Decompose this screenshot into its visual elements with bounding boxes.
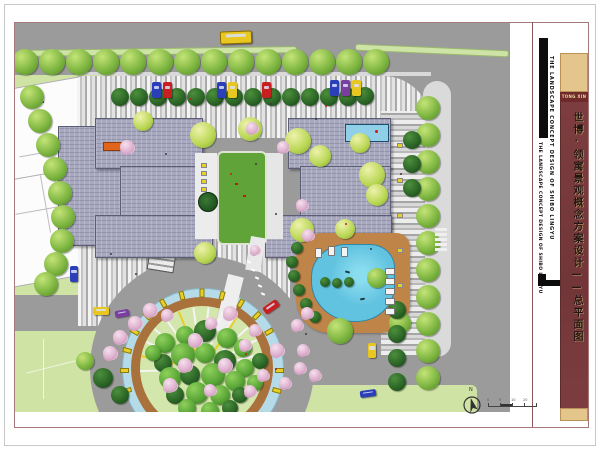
tree-dark: [403, 131, 421, 149]
tree-light: [66, 49, 92, 75]
scale-bar: 051020: [488, 398, 540, 410]
tree-yellow: [309, 145, 331, 167]
tree-yellow: [190, 122, 216, 148]
chinese-title: 世博·领寓景观概念方案设计——总平面图: [569, 112, 584, 343]
person-dot: [325, 105, 327, 107]
scale-tick: [536, 403, 537, 407]
crosswalk-bar: [435, 238, 447, 241]
tree-light: [39, 49, 65, 75]
tree-flowering: [250, 245, 260, 255]
pool-lounger: [341, 247, 348, 257]
tree-light: [15, 49, 38, 75]
tree-flowering: [204, 384, 216, 396]
titleblock-divider-line: [532, 22, 533, 427]
tree-dark: [403, 179, 421, 197]
person-dot: [245, 353, 247, 355]
tree-flowering: [270, 343, 284, 357]
tree-dark: [293, 284, 305, 296]
tree-light: [363, 49, 389, 75]
tree-light: [327, 318, 353, 344]
person-dot: [110, 253, 112, 255]
parking-marker: [201, 171, 207, 176]
parking-marker: [201, 163, 207, 168]
person-dot: [220, 101, 222, 103]
tree-yellow: [335, 219, 355, 239]
car: [330, 80, 339, 96]
tree-light: [416, 366, 440, 390]
parking-marker: [397, 283, 403, 288]
tree-dark: [286, 256, 298, 268]
plaza-tick: [200, 289, 205, 298]
tree-flowering: [279, 377, 291, 389]
tree-dark: [388, 349, 406, 367]
person-dot: [275, 213, 277, 215]
tree-yellow: [133, 111, 153, 131]
tree-flowering: [302, 229, 314, 241]
tree-dark: [111, 386, 129, 404]
tree-flowering: [257, 369, 269, 381]
tree-flowering: [297, 344, 309, 356]
tree-yellow: [285, 128, 311, 154]
car: [368, 343, 376, 358]
lawn-line: [43, 339, 44, 399]
tree-flowering: [291, 319, 303, 331]
tree-light: [120, 49, 146, 75]
tree-flowering: [309, 369, 321, 381]
tree-plaza: [145, 345, 161, 361]
crosswalk-bar: [435, 243, 447, 246]
plaza-tick: [120, 368, 129, 373]
scale-bar-segment: [500, 404, 512, 406]
car: [93, 307, 109, 315]
tree-flowering: [296, 199, 308, 211]
tree-light: [43, 157, 67, 181]
tree-dark: [93, 368, 113, 388]
scale-tick: [488, 403, 489, 407]
tree-light: [51, 205, 75, 229]
tree-light: [416, 258, 440, 282]
tree-light: [93, 49, 119, 75]
tree-light: [36, 133, 60, 157]
car: [262, 82, 271, 98]
site-plan: L: [15, 23, 510, 412]
car: [341, 80, 350, 96]
tree-flowering: [128, 316, 142, 330]
tree-light: [228, 49, 254, 75]
tree-flowering: [239, 339, 251, 351]
marker-dot: [375, 130, 378, 133]
tree-flowering: [205, 317, 217, 329]
scale-tick: [524, 403, 525, 407]
person-dot: [275, 368, 277, 370]
scale-tick: [512, 403, 513, 407]
tree-flowering: [301, 307, 313, 319]
tree-yellow: [194, 242, 216, 264]
scale-tick-label: 5: [499, 398, 501, 402]
car: [163, 82, 172, 98]
titleblock-black-bar: [539, 38, 548, 138]
tree-plaza: [252, 353, 268, 369]
person-dot: [255, 163, 257, 165]
drawing-sheet: L THE LANDSCAPE CO: [0, 0, 600, 450]
tree-light: [416, 339, 440, 363]
tree-light: [367, 268, 387, 288]
tree-light: [416, 285, 440, 309]
tree-dark: [111, 88, 129, 106]
tree-flowering: [103, 346, 117, 360]
car: [152, 82, 161, 98]
tree-flowering: [249, 324, 261, 336]
tree-dark: [291, 242, 303, 254]
person-dot: [190, 98, 192, 100]
brand-logo: TONG XIN: [560, 92, 588, 102]
english-title-2: THE LANDSCAPE CONCEPT DESIGN OF SHIBO LI…: [548, 56, 554, 236]
tree-yellow: [366, 184, 388, 206]
parking-marker: [397, 178, 403, 183]
tree-dark: [288, 270, 300, 282]
tree-dark: [344, 277, 354, 287]
tree-light: [174, 49, 200, 75]
car: [228, 82, 237, 98]
lawn-marker: [243, 195, 246, 197]
tree-flowering: [161, 309, 173, 321]
tree-flowering: [244, 385, 256, 397]
tree-dark: [388, 373, 406, 391]
scale-tick-label: 10: [511, 398, 515, 402]
person-dot: [270, 103, 272, 105]
person-dot: [400, 173, 402, 175]
tree-plaza: [222, 400, 238, 412]
tree-light: [48, 181, 72, 205]
parking-marker: [201, 179, 207, 184]
tree-flowering: [188, 333, 202, 347]
tree-dark: [130, 88, 148, 106]
tree-light: [416, 96, 440, 120]
car: [220, 30, 252, 44]
tree-plaza: [178, 399, 196, 412]
crosswalk-bar: [435, 248, 447, 251]
tree-flowering: [120, 140, 134, 154]
brand-tan-footer: [560, 408, 588, 421]
titleblock-maroon-bar: 世博·领寓景观概念方案设计——总平面图: [560, 102, 588, 408]
person-dot: [345, 223, 347, 225]
tree-yellow: [350, 133, 370, 153]
tree-flowering: [113, 330, 127, 344]
parking-marker: [397, 213, 403, 218]
parking-marker: [397, 248, 403, 253]
parking-marker: [397, 143, 403, 148]
tree-light: [34, 272, 58, 296]
scale-tick-label: 20: [523, 398, 527, 402]
tree-dark: [403, 155, 421, 173]
tree-light: [416, 312, 440, 336]
tree-light: [336, 49, 362, 75]
tree-flowering: [223, 306, 237, 320]
titleblock-elbow: [538, 280, 560, 286]
tree-light: [50, 229, 74, 253]
scale-tick-label: 0: [487, 398, 489, 402]
person-dot: [370, 248, 372, 250]
english-title-1: THE LANDSCAPE CONCEPT DESIGN OF SHIBO LI…: [537, 142, 542, 272]
tree-light: [416, 204, 440, 228]
tree-light: [201, 49, 227, 75]
person-dot: [165, 153, 167, 155]
north-label: N: [469, 387, 473, 393]
tree-flowering: [218, 358, 232, 372]
lawn-marker: [235, 183, 238, 185]
pool-lounger: [385, 298, 395, 305]
tree-dark: [320, 277, 330, 287]
car: [352, 80, 361, 96]
pool-lounger: [385, 288, 395, 295]
car: [70, 266, 78, 282]
pool-lounger: [315, 248, 322, 258]
courtyard-round-garden: [198, 192, 218, 212]
tree-flowering: [178, 358, 192, 372]
tree-light: [309, 49, 335, 75]
tree-light: [76, 352, 94, 370]
tree-flowering: [246, 122, 258, 134]
pool-lounger: [385, 278, 395, 285]
pool-lounger: [385, 268, 395, 275]
tree-flowering: [143, 303, 157, 317]
tree-light: [20, 85, 44, 109]
scale-tick: [500, 403, 501, 407]
pool-lounger: [328, 246, 335, 256]
tree-flowering: [294, 362, 306, 374]
tree-light: [282, 49, 308, 75]
north-arrow-icon: [461, 394, 483, 416]
parking-marker: [201, 187, 207, 192]
pool-lounger: [385, 308, 395, 315]
brand-tan-bar: [560, 53, 588, 92]
tree-dark: [332, 278, 342, 288]
tree-light: [147, 49, 173, 75]
tree-light: [28, 109, 52, 133]
person-dot: [230, 173, 232, 175]
tree-dark: [301, 88, 319, 106]
tree-dark: [187, 88, 205, 106]
tree-dark: [282, 88, 300, 106]
car: [217, 82, 226, 98]
courtyard-lawn: [217, 151, 267, 245]
tree-dark: [244, 88, 262, 106]
crosswalk-bar: [435, 233, 447, 236]
tree-dark: [388, 325, 406, 343]
person-dot: [305, 333, 307, 335]
crosswalk-bar: [435, 228, 447, 231]
person-dot: [135, 273, 137, 275]
person-dot: [315, 118, 317, 120]
tree-light: [255, 49, 281, 75]
tree-flowering: [277, 141, 289, 153]
tree-flowering: [163, 378, 177, 392]
